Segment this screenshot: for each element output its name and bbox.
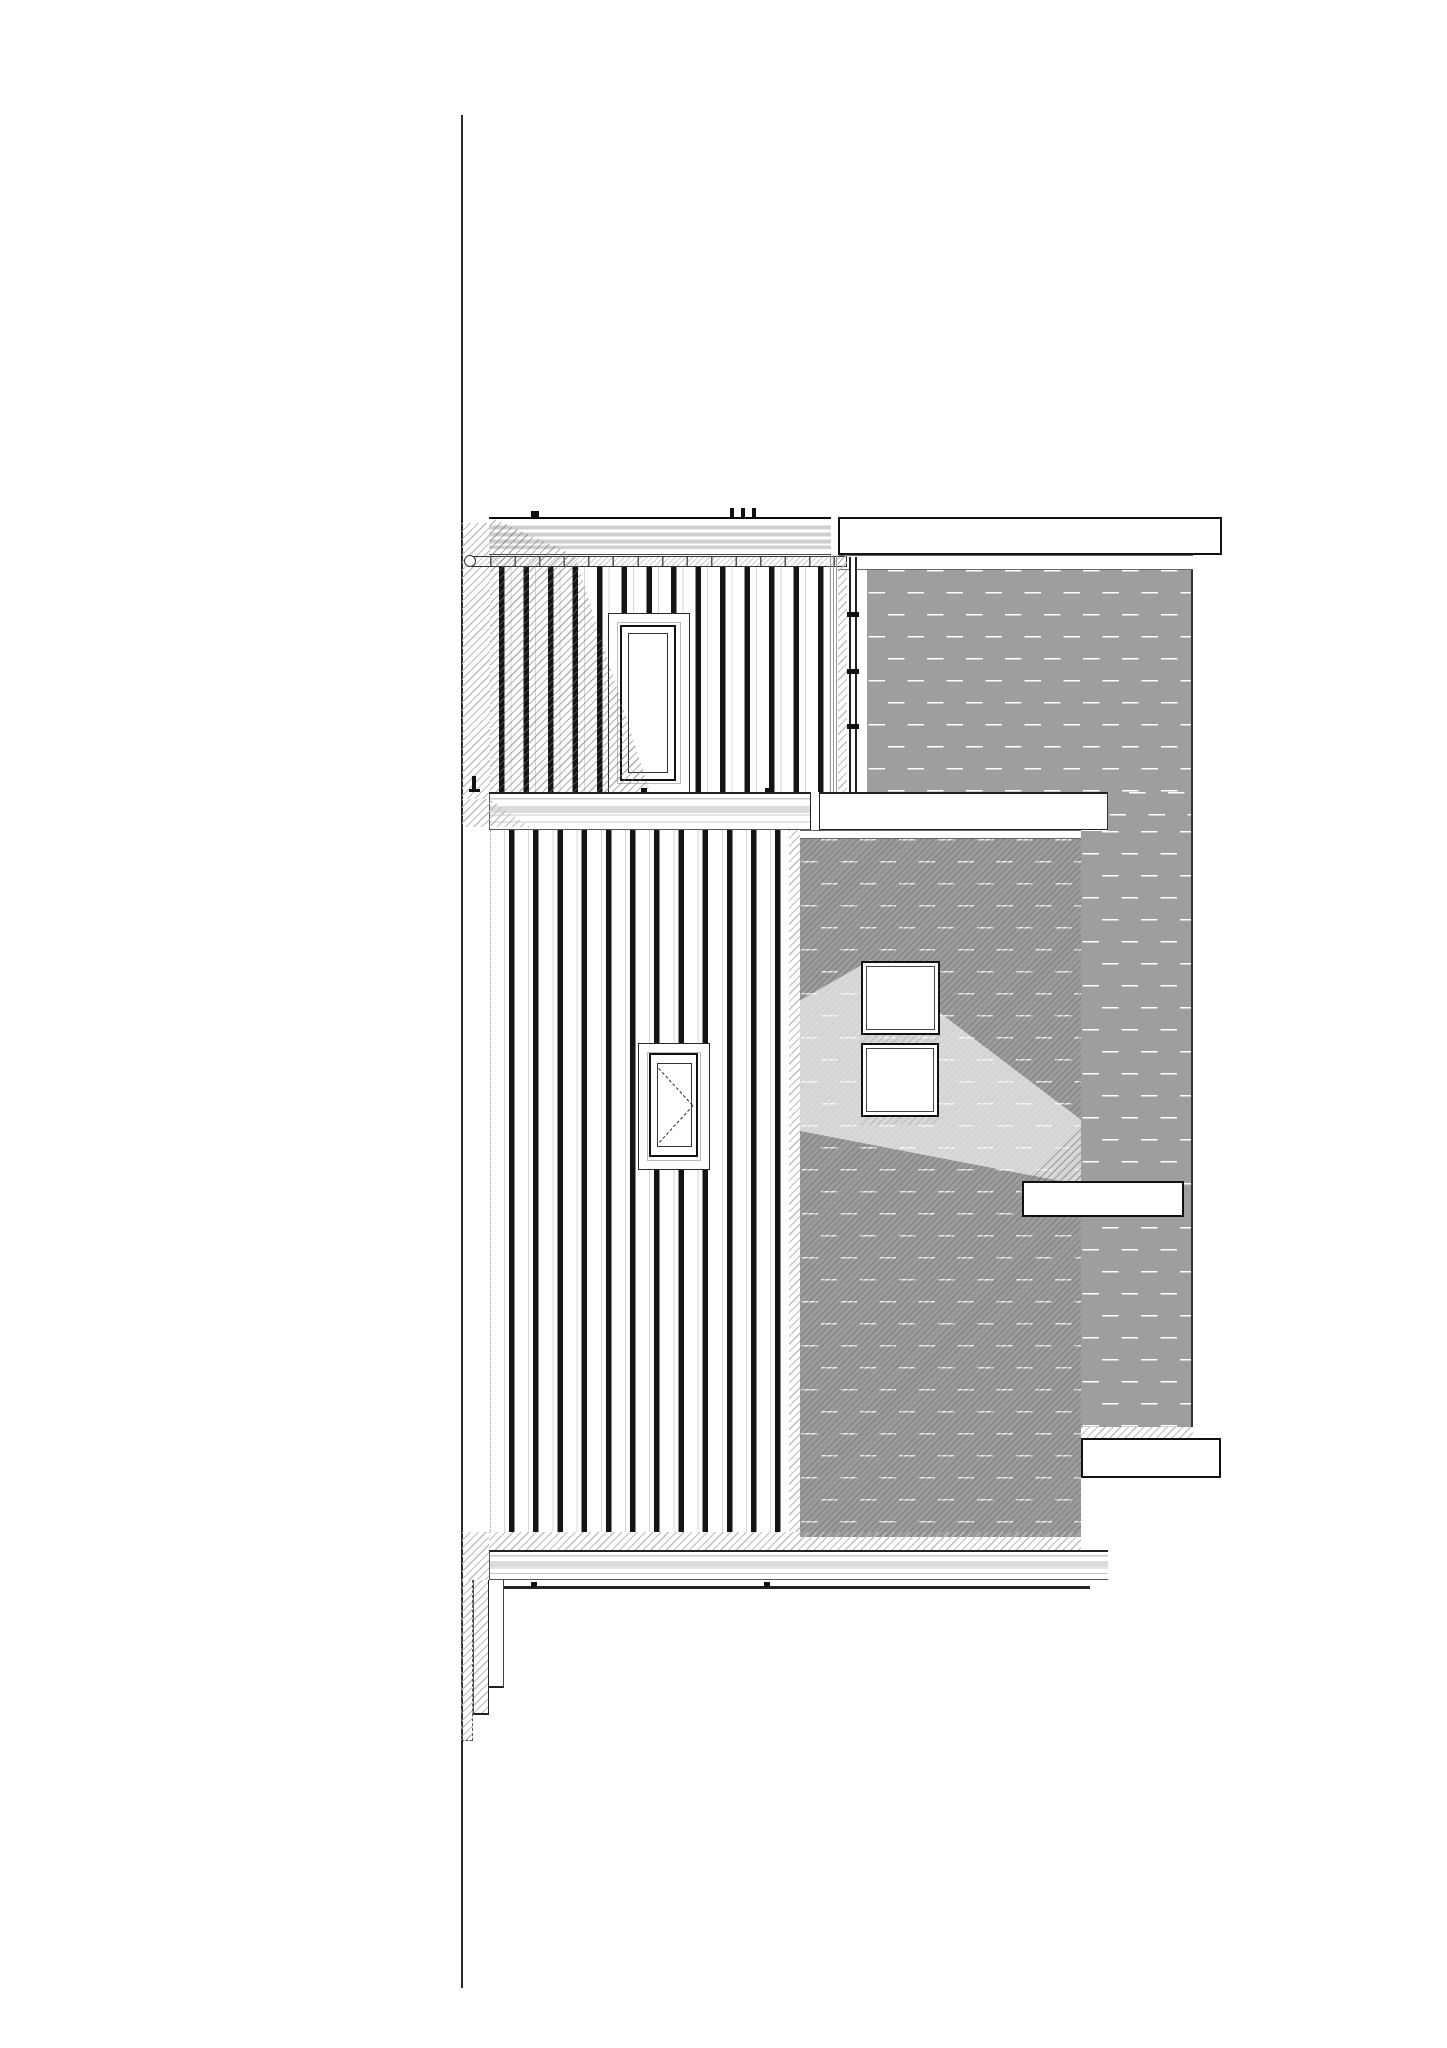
upper-corner-trim [830, 555, 838, 792]
band-corner-joint [810, 792, 820, 830]
upper-brick-wall [867, 570, 1193, 792]
drawing-stage [0, 0, 1447, 2048]
pier-sill [1081, 1427, 1193, 1438]
band-under-strip [800, 830, 1081, 839]
window-sill-band-1 [861, 1035, 940, 1043]
downpipe-bracket-1 [847, 612, 859, 617]
ground-line [490, 1586, 1090, 1589]
brick-pier-upper [1108, 792, 1193, 831]
brick-pier [1081, 831, 1193, 1427]
handrail-end-cap [464, 555, 476, 567]
band-top-tick-2 [765, 788, 771, 792]
first-floor-band-right [820, 792, 1108, 830]
ground-tick-2 [764, 1582, 770, 1587]
downpipe-bracket-2 [847, 669, 859, 674]
right-parapet-capping [838, 517, 1222, 555]
lower-brick-corner-shadow [789, 830, 800, 1532]
lower-right-band [1081, 1438, 1221, 1478]
ground-floor-band [489, 1550, 1108, 1580]
first-floor-band [489, 792, 820, 830]
base-left-hatch [462, 1532, 489, 1580]
footing-step-mid [473, 1580, 489, 1715]
right-parapet-strip [838, 555, 1193, 570]
window-sill-band-2 [861, 1117, 939, 1125]
terrace-post-foot [469, 789, 480, 792]
fascia-top-dot-3 [752, 508, 756, 517]
fascia-top-tick [531, 511, 539, 517]
brick-window-2 [861, 1043, 939, 1117]
brick-window-1 [861, 961, 940, 1035]
lower-cladding-battens [490, 830, 789, 1532]
footing-step-outer [461, 1580, 473, 1741]
downpipe-bracket-3 [847, 724, 859, 729]
footing-step-inner [489, 1580, 504, 1688]
upper-corner-shadow [838, 555, 847, 792]
fascia-top-dot-1 [730, 508, 734, 517]
base-shadow-strip [489, 1532, 1081, 1550]
inset-concrete-band [1022, 1181, 1184, 1217]
band-top-tick-1 [641, 788, 647, 792]
rainwater-downpipe [849, 557, 857, 792]
fascia-top-dot-2 [741, 508, 745, 517]
ground-tick-1 [531, 1582, 537, 1587]
